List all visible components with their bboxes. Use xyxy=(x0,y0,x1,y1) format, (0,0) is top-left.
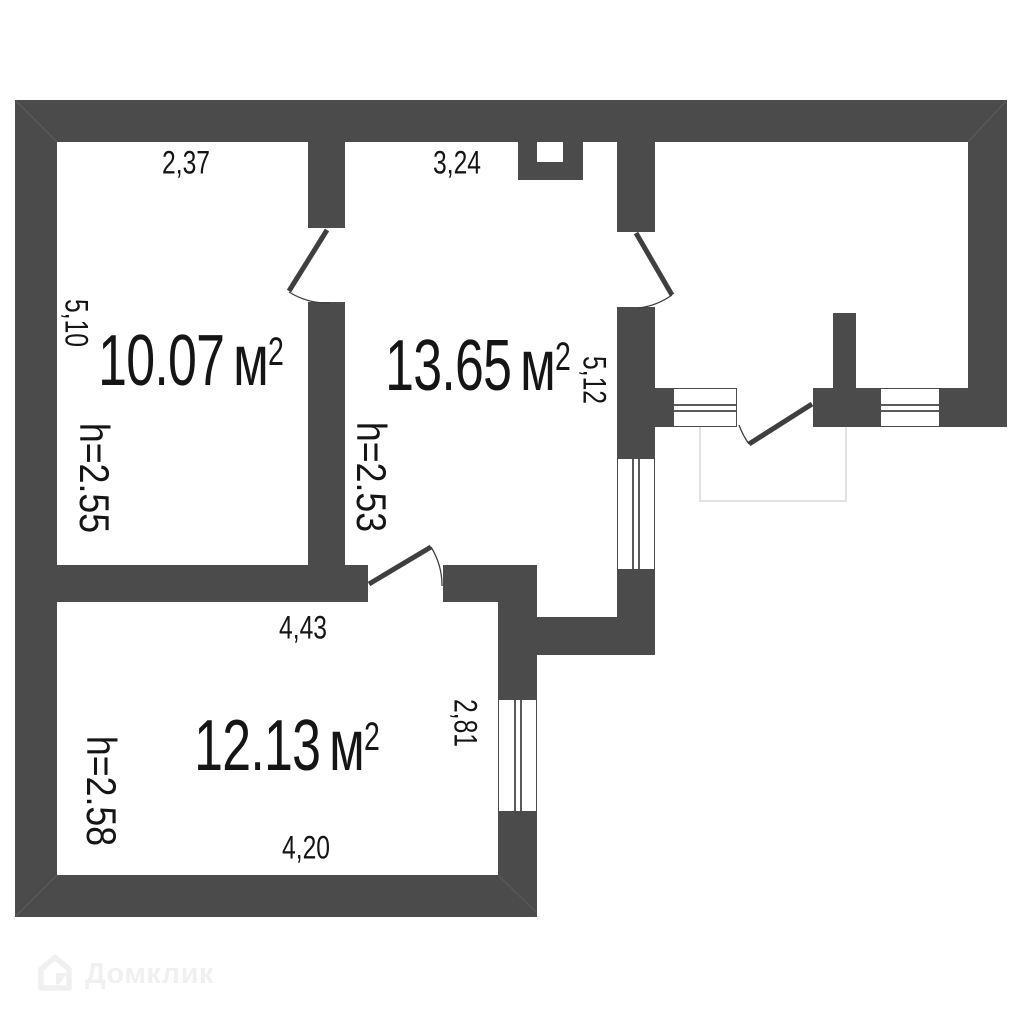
room3-side-dimension: 2,81 xyxy=(447,699,484,747)
door-rightroom-entrance xyxy=(739,404,812,444)
room3-area-value: 12.13 xyxy=(194,706,320,786)
room1-ceiling-height: h=2.55 xyxy=(70,423,118,533)
room1-length-dimension: 5,10 xyxy=(58,299,95,347)
room3-top-dimension: 4,43 xyxy=(279,610,327,647)
doors-overlay xyxy=(0,0,1024,1024)
door-room2-rightroom xyxy=(636,233,672,308)
room2-width-dimension: 3,24 xyxy=(433,145,481,182)
area-unit: м xyxy=(520,326,555,406)
room3-ceiling-height: h=2.58 xyxy=(77,736,125,846)
floor-plan-canvas: 2,37 5,10 10.07м2 h=2.55 3,24 5,12 13.65… xyxy=(0,0,1024,1024)
door-room1-room2 xyxy=(289,230,330,303)
door-leaf xyxy=(636,233,672,295)
room2-ceiling-height: h=2.53 xyxy=(347,422,395,532)
area-power: 2 xyxy=(268,330,284,374)
door-swing-arc xyxy=(289,292,330,303)
wall-corner-seams xyxy=(16,101,1006,916)
room1-area-value: 10.07 xyxy=(98,321,224,401)
room1-width-dimension: 2,37 xyxy=(162,145,210,182)
room2-length-dimension: 5,12 xyxy=(576,356,613,404)
room2-area-value: 13.65 xyxy=(385,326,511,406)
room3-area-label: 12.13м2 xyxy=(194,705,380,787)
room2-area-label: 13.65м2 xyxy=(385,325,571,407)
door-swing-arc xyxy=(431,547,442,586)
area-power: 2 xyxy=(364,715,380,759)
door-swing-arc xyxy=(639,295,672,308)
door-room2-room3 xyxy=(369,547,442,586)
door-swing-arc xyxy=(739,425,749,444)
room1-area-label: 10.07м2 xyxy=(98,320,284,402)
door-leaf xyxy=(749,404,812,444)
area-power: 2 xyxy=(555,335,571,379)
door-leaf xyxy=(369,547,431,584)
room3-bottom-dimension: 4,20 xyxy=(282,830,330,867)
door-leaf xyxy=(289,230,327,291)
area-unit: м xyxy=(329,706,364,786)
area-unit: м xyxy=(233,321,268,401)
balcony-outline xyxy=(700,427,846,501)
